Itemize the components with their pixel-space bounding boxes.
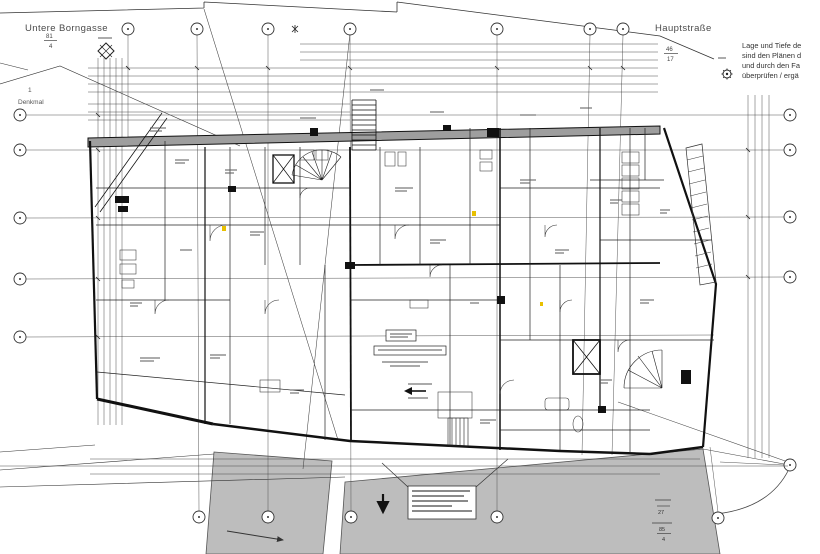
note-block: Lage und Tiefe de sind den Plänen d und … xyxy=(742,41,801,80)
svg-text:4: 4 xyxy=(662,537,665,543)
exit-arrow-left xyxy=(404,387,426,395)
micro-labels xyxy=(98,38,726,523)
stair-short-run xyxy=(448,418,468,446)
grid-axes xyxy=(26,35,784,512)
dimension-lines xyxy=(0,44,788,474)
elevator-shaft-right xyxy=(573,340,600,374)
denkmal-number: 1 xyxy=(28,87,32,94)
svg-text:4: 4 xyxy=(49,44,53,50)
grid-marker-col-left xyxy=(14,109,26,343)
note-line-2: sind den Plänen d xyxy=(742,51,801,60)
boxed-labels xyxy=(374,330,446,398)
door-arcs xyxy=(155,188,630,394)
dimension-ticks xyxy=(96,66,750,339)
elevator-shaft-left xyxy=(273,155,294,183)
street-label-untere-borngasse: Untere Borngasse xyxy=(25,23,108,34)
fraction-top-left: 81 4 xyxy=(44,34,57,50)
svg-text:46: 46 xyxy=(666,47,673,53)
solid-wall-blocks xyxy=(115,125,691,413)
floor-plan-sheet: Untere Borngasse Hauptstraße 1 Denkmal 8… xyxy=(0,0,820,554)
building-walls xyxy=(88,113,716,454)
property-lines xyxy=(0,2,789,514)
survey-marker-icon xyxy=(98,43,114,59)
stair-winder-fan xyxy=(292,150,341,180)
stair-straight-run xyxy=(352,100,376,150)
grid-axis-markers xyxy=(14,23,796,524)
reference-star-icon xyxy=(292,25,298,33)
svg-text:85: 85 xyxy=(659,527,665,533)
ramp-hatched-band xyxy=(686,144,716,285)
grid-marker-glyph-dots xyxy=(19,28,791,519)
floor-plan-canvas: Untere Borngasse Hauptstraße 1 Denkmal 8… xyxy=(0,0,820,554)
note-line-3: und durch den Fa xyxy=(742,61,801,70)
svg-text:27: 27 xyxy=(658,510,664,516)
benchmark-icon xyxy=(722,69,733,80)
grid-marker-col-right xyxy=(784,109,796,471)
svg-text:81: 81 xyxy=(46,34,53,40)
note-line-1: Lage und Tiefe de xyxy=(742,41,801,50)
street-label-hauptstrasse: Hauptstraße xyxy=(655,23,712,34)
note-line-4: überprüfen / ergä xyxy=(742,71,800,80)
interior-partitions xyxy=(96,128,714,453)
grid-marker-row-top xyxy=(122,23,629,35)
denkmal-label: Denkmal xyxy=(18,99,44,106)
svg-text:17: 17 xyxy=(667,57,674,63)
fraction-top-right: 46 17 xyxy=(664,47,678,63)
